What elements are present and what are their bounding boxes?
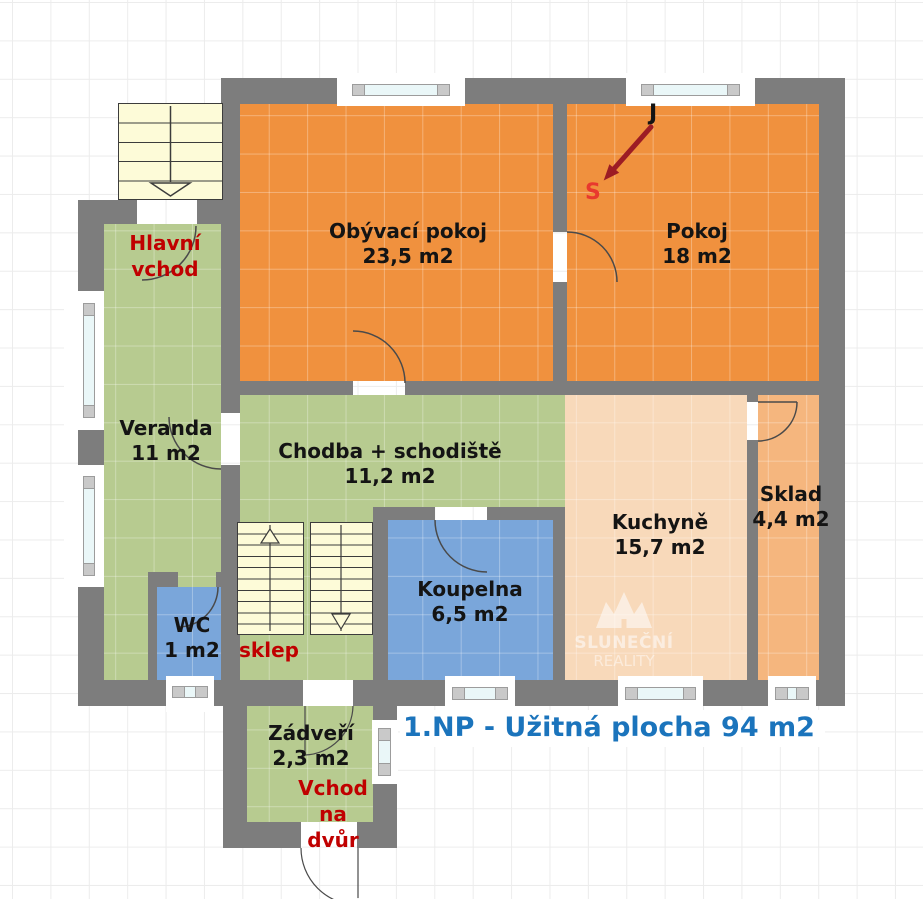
- room-name: Zádveří: [268, 721, 354, 746]
- room-name: Koupelna: [417, 577, 523, 602]
- wall-entry-left: [78, 200, 137, 224]
- window-glass: [352, 84, 450, 96]
- door-opening-zadveri: [303, 680, 353, 706]
- wall-mid-right: [405, 381, 819, 395]
- window-glass: [83, 476, 95, 576]
- staircase-flight-up: [237, 522, 304, 635]
- window-glass: [775, 687, 809, 700]
- room-area: 2,3 m2: [268, 746, 354, 771]
- room-area: 4,4 m2: [752, 507, 829, 532]
- room-name: Chodba + schodiště: [278, 439, 501, 464]
- annotation-line: Vchod: [298, 775, 368, 801]
- label-kuchyne: Kuchyně 15,7 m2: [612, 510, 708, 560]
- annotation-line: Hlavní: [129, 230, 200, 256]
- staircase-exterior-entrance: [118, 103, 223, 200]
- window-glass: [641, 84, 740, 96]
- room-sklad: [758, 395, 819, 680]
- window-glass: [172, 686, 208, 698]
- annotation-line: dvůr: [298, 827, 368, 853]
- wall-sklad-divider: [747, 440, 758, 680]
- wall-left: [78, 200, 104, 706]
- label-sklad: Sklad 4,4 m2: [752, 482, 829, 532]
- window-glass: [452, 687, 508, 700]
- sun-house-logo-icon: [592, 590, 656, 630]
- label-chodba: Chodba + schodiště 11,2 m2: [278, 439, 501, 489]
- room-area: 6,5 m2: [417, 602, 523, 627]
- room-name: Obývací pokoj: [329, 219, 487, 244]
- wall-mid-left: [236, 381, 353, 395]
- wall-zadveri-left: [223, 706, 247, 848]
- room-name: Veranda: [119, 416, 212, 441]
- compass-south-label: J: [649, 101, 657, 126]
- room-area: 23,5 m2: [329, 244, 487, 269]
- annotation-line: sklep: [239, 638, 299, 662]
- room-area: 1 m2: [164, 638, 220, 663]
- staircase-flight-down-cellar: [310, 522, 373, 635]
- wall-pokoj-divider-lower: [553, 282, 567, 381]
- wall-pokoj-divider-upper: [553, 104, 567, 232]
- door-arc-yard-exit: [301, 848, 358, 899]
- annotation-line: vchod: [129, 256, 200, 282]
- floor-plan: SLUNEČNÍ REALITY Obývací pokoj 23,5 m2 P…: [0, 0, 923, 899]
- watermark-line2: REALITY: [564, 653, 684, 670]
- wall-wc-left: [148, 587, 157, 680]
- label-koupelna: Koupelna 6,5 m2: [417, 577, 523, 627]
- room-area: 15,7 m2: [612, 535, 708, 560]
- label-pokoj: Pokoj 18 m2: [662, 219, 732, 269]
- label-veranda: Veranda 11 m2: [119, 416, 212, 466]
- window-glass: [83, 303, 95, 418]
- watermark-line1: SLUNEČNÍ: [564, 634, 684, 653]
- label-wc: WC 1 m2: [164, 613, 220, 663]
- annotation-line: na: [298, 801, 368, 827]
- floor-title: 1.NP - Užitná plocha 94 m2: [400, 710, 825, 747]
- window-glass: [625, 687, 696, 700]
- compass-north-label: S: [585, 180, 601, 205]
- wall-koupelna-left: [373, 520, 388, 680]
- wall-wc-top-left: [148, 572, 178, 587]
- label-zadveri: Zádveří 2,3 m2: [268, 721, 354, 771]
- label-obyvaci-pokoj: Obývací pokoj 23,5 m2: [329, 219, 487, 269]
- wall-right: [819, 78, 845, 706]
- room-area: 11,2 m2: [278, 464, 501, 489]
- wall-wc-top-right: [216, 572, 221, 587]
- wall-koupelna-top-left: [373, 507, 435, 520]
- window-glass: [378, 728, 391, 776]
- room-name: Sklad: [752, 482, 829, 507]
- label-main-entrance: Hlavní vchod: [129, 230, 200, 282]
- wall-zadveri-bottom-left: [247, 822, 301, 848]
- room-name: Pokoj: [662, 219, 732, 244]
- wall-veranda-divider-upper: [221, 78, 240, 413]
- wall-sklad-divider-top: [747, 395, 758, 402]
- room-name: WC: [164, 613, 220, 638]
- label-cellar: sklep: [239, 637, 299, 663]
- agency-watermark: SLUNEČNÍ REALITY: [564, 590, 684, 670]
- room-area: 11 m2: [119, 441, 212, 466]
- label-yard-entrance: Vchod na dvůr: [298, 775, 368, 853]
- room-area: 18 m2: [662, 244, 732, 269]
- room-name: Kuchyně: [612, 510, 708, 535]
